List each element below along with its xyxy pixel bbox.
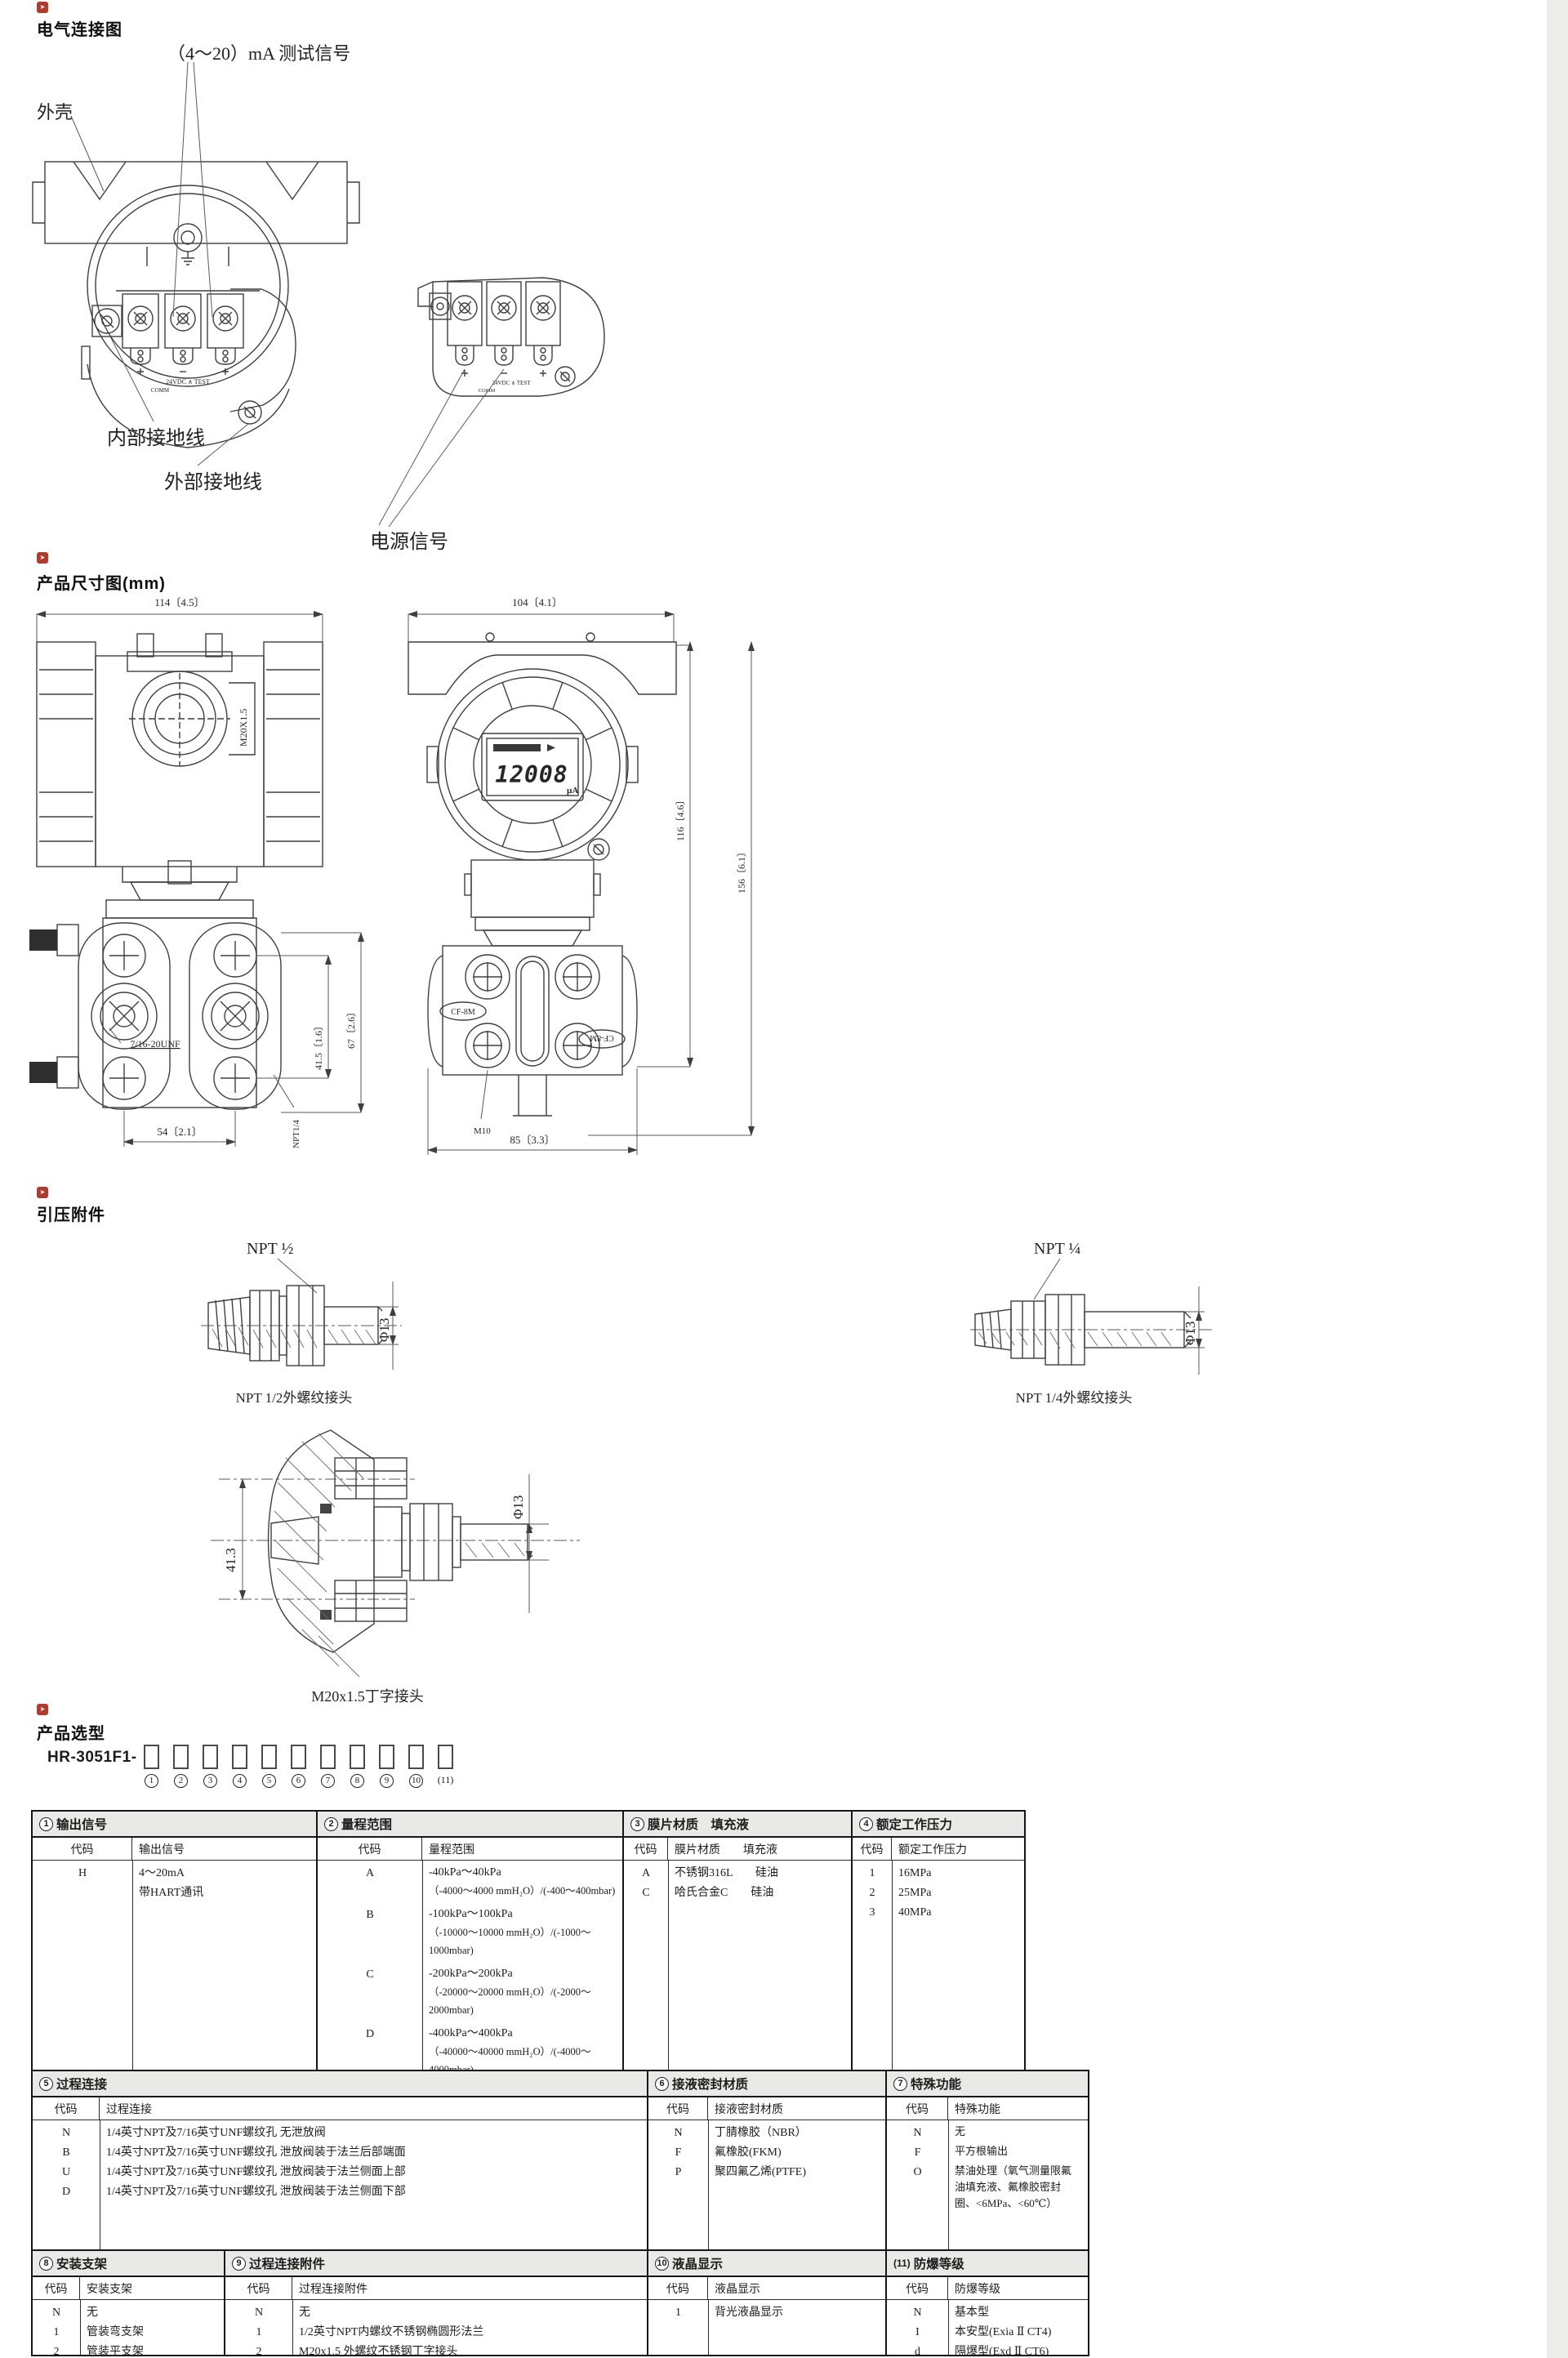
spec-code: F [648, 2143, 708, 2163]
spec-code: I [887, 2323, 948, 2342]
model-position-5: 5 [261, 1745, 278, 1788]
spec-row: d隔爆型(Exd Ⅱ CT6) [887, 2342, 1088, 2355]
dim-width: 114〔4.5〕 [154, 596, 204, 608]
spec-value: 1/4英寸NPT及7/16英寸UNF螺纹孔 无泄放阀 [100, 2124, 647, 2143]
dim-drain-thread: NPT1/4 [292, 1120, 301, 1148]
flange-badge: CF-8M [451, 1008, 475, 1017]
spec-section-title: 额定工作压力 [876, 1815, 952, 1833]
fitting-caption: NPT 1/4外螺纹接头 [1016, 1390, 1133, 1406]
spec-rows: 116MPa225MPa340MPa [853, 1861, 1024, 2070]
spec-section-title: 防爆等级 [914, 2254, 964, 2272]
position-number-11: (11) [438, 1774, 454, 1786]
model-position-4: 4 [232, 1745, 248, 1788]
spec-rows: A不锈钢316L 硅油C哈氏合金C 硅油 [624, 1861, 851, 2070]
npt-quarter-fitting-drawing: NPT ¼ Φ13 NPT 1/4外螺纹接头 [964, 1221, 1233, 1425]
position-number-10: 10 [409, 1774, 423, 1788]
position-number-3: 3 [203, 1774, 217, 1788]
spec-value: 1/4英寸NPT及7/16英寸UNF螺纹孔 泄放阀装于法兰侧面下部 [100, 2182, 647, 2202]
model-code-box [261, 1745, 277, 1769]
dim-bolt-width: 54〔2.1〕 [157, 1126, 202, 1138]
spec-value: 无 [292, 2303, 647, 2323]
model-code-box [438, 1745, 453, 1769]
position-number-6: 6 [655, 2077, 669, 2091]
spec-table-group-2: 5过程连接代码过程连接N1/4英寸NPT及7/16英寸UNF螺纹孔 无泄放阀B1… [31, 2070, 1089, 2251]
value-column-header: 输出信号 [132, 1838, 316, 1860]
spec-value: 1/2英寸NPT内螺纹不锈钢椭圆形法兰 [292, 2323, 647, 2342]
model-position-7: 7 [320, 1745, 336, 1788]
spec-row: 116MPa [853, 1864, 1024, 1883]
spec-row: 340MPa [853, 1903, 1024, 1923]
lcd-unit: µA [567, 786, 578, 796]
spec-row: 2M20x1.5 外螺纹不锈钢丁字接头 [225, 2342, 647, 2355]
spec-subheader: 代码量程范围 [318, 1838, 622, 1861]
spec-code: H [33, 1864, 132, 1903]
spec-row: N无 [33, 2303, 224, 2323]
position-number-4: 4 [859, 1817, 873, 1831]
position-number-9: 9 [380, 1774, 394, 1788]
spec-code: P [648, 2163, 708, 2182]
lcd-value: 12008 [495, 761, 568, 788]
spec-value: 40MPa [892, 1903, 1024, 1923]
page-edge-strip [1547, 0, 1568, 2358]
model-position-10: 10 [408, 1745, 425, 1788]
dim-bolt-span: 41.5〔1.6〕 [313, 1021, 324, 1070]
spec-code: 2 [853, 1883, 892, 1903]
spec-code: U [33, 2163, 100, 2182]
spec-code: 2 [225, 2342, 292, 2355]
spec-subheader: 代码特殊功能 [887, 2097, 1088, 2120]
code-column-header: 代码 [887, 2277, 948, 2299]
spec-row: B-100kPa～100kPa（-10000～10000 mmH₂O）/(-10… [318, 1906, 622, 1959]
spec-row: N丁腈橡胶（NBR） [648, 2124, 885, 2143]
spec-section-header: 1输出信号 [33, 1812, 316, 1838]
model-code-box [379, 1745, 394, 1769]
model-position-6: 6 [291, 1745, 307, 1788]
spec-rows: N1/4英寸NPT及7/16英寸UNF螺纹孔 无泄放阀B1/4英寸NPT及7/1… [33, 2120, 647, 2249]
spec-rows: N无1管装弯支架2管装平支架 [33, 2300, 224, 2355]
spec-section-header: 5过程连接 [33, 2071, 647, 2097]
selection-table: 1输出信号代码输出信号H4～20mA带HART通讯2量程范围代码量程范围A-40… [31, 1810, 1089, 2356]
position-number-3: 3 [630, 1817, 644, 1831]
position-number-10: 10 [655, 2257, 669, 2271]
spec-value: 25MPa [892, 1883, 1024, 1903]
spec-section-title: 膜片材质 填充液 [648, 1815, 749, 1833]
spec-value: 氟橡胶(FKM) [708, 2143, 885, 2163]
model-code-box [350, 1745, 365, 1769]
spec-code: 1 [853, 1864, 892, 1883]
value-column-header: 特殊功能 [948, 2097, 1088, 2120]
spec-rows: N丁腈橡胶（NBR）F氟橡胶(FKM)P聚四氟乙烯(PTFE) [648, 2120, 885, 2249]
spec-section-header: 3膜片材质 填充液 [624, 1812, 851, 1838]
position-number-5: 5 [262, 1774, 276, 1788]
section-title-dimensions: 产品尺寸图(mm) [37, 570, 166, 594]
fitting-caption: NPT 1/2外螺纹接头 [236, 1390, 353, 1406]
spec-code: 2 [33, 2342, 80, 2355]
position-number-9: 9 [232, 2257, 246, 2271]
spec-section-header: (11)防爆等级 [887, 2251, 1088, 2277]
spec-section-header: 4额定工作压力 [853, 1812, 1024, 1838]
code-column-header: 代码 [887, 2097, 948, 2120]
spec-row: 1管装弯支架 [33, 2323, 224, 2342]
spec-rows: A-40kPa～40kPa（-4000～4000 mmH₂O）/(-400～40… [318, 1861, 622, 2070]
dim-diameter: Φ13 [1183, 1322, 1198, 1345]
transmitter-front-view-drawing: 114〔4.5〕 [24, 595, 392, 1162]
terminal-panel-text: 24VDC ∧ TEST [166, 378, 210, 386]
value-column-header: 接液密封材质 [708, 2097, 885, 2120]
spec-code: A [318, 1864, 422, 1900]
spec-row: 11/2英寸NPT内螺纹不锈钢椭圆形法兰 [225, 2323, 647, 2342]
spec-value: -200kPa～200kPa（-20000～20000 mmH₂O）/(-200… [422, 1965, 622, 2019]
spec-row: N无 [887, 2124, 1088, 2143]
datasheet-page: ➤ 电气连接图 ➤ 产品尺寸图(mm) ➤ 引压附件 ➤ 产品选型 （4～20）… [0, 0, 1568, 2358]
spec-code: A [624, 1864, 668, 1883]
spec-value: -100kPa～100kPa（-10000～10000 mmH₂O）/(-100… [422, 1906, 622, 1959]
spec-value: 背光液晶显示 [708, 2303, 885, 2323]
spec-section-6: 6接液密封材质代码接液密封材质N丁腈橡胶（NBR）F氟橡胶(FKM)P聚四氟乙烯… [647, 2071, 885, 2249]
spec-value: 管装平支架 [80, 2342, 224, 2355]
model-position-9: 9 [379, 1745, 395, 1788]
spec-value: 无 [80, 2303, 224, 2323]
spec-section-title: 过程连接 [56, 2075, 107, 2093]
dim-height: 116〔4.6〕 [675, 795, 686, 841]
spec-code: C [624, 1883, 668, 1903]
model-prefix: HR-3051F1- [47, 1745, 137, 1771]
spec-section-title: 接液密封材质 [672, 2075, 748, 2093]
spec-rows: 1背光液晶显示 [648, 2300, 885, 2355]
electrical-connection-drawing: 24VDC ∧ TEST COMM [24, 47, 376, 505]
spec-subheader: 代码防爆等级 [887, 2277, 1088, 2300]
spec-section-title: 过程连接附件 [249, 2254, 325, 2272]
transmitter-side-view-drawing: 104〔4.1〕 [392, 595, 772, 1162]
position-number-11: (11) [893, 2258, 911, 2269]
spec-code: O [887, 2163, 948, 2212]
spec-value: 隔爆型(Exd Ⅱ CT6) [948, 2342, 1088, 2355]
spec-row: C-200kPa～200kPa（-20000～20000 mmH₂O）/(-20… [318, 1965, 622, 2019]
position-number-1: 1 [145, 1774, 158, 1788]
spec-value: 管装弯支架 [80, 2323, 224, 2342]
spec-value: 聚四氟乙烯(PTFE) [708, 2163, 885, 2182]
fitting-caption: M20x1.5丁字接头 [311, 1688, 424, 1705]
model-code-box [232, 1745, 247, 1769]
model-code-box [203, 1745, 218, 1769]
spec-section-9: 9过程连接附件代码过程连接附件N无11/2英寸NPT内螺纹不锈钢椭圆形法兰2M2… [224, 2251, 647, 2355]
spec-code: N [225, 2303, 292, 2323]
code-column-header: 代码 [318, 1838, 422, 1860]
dim-diameter: Φ13 [376, 1318, 392, 1342]
spec-subheader: 代码过程连接 [33, 2097, 647, 2120]
terminal-panel-text2: COMM [479, 388, 496, 394]
spec-section-title: 特殊功能 [911, 2075, 961, 2093]
dim-flange-width: 85〔3.3〕 [510, 1134, 555, 1146]
dim-flange-thread: 7/16-20UNF [130, 1038, 180, 1050]
model-position-11: (11) [438, 1745, 454, 1788]
spec-code: 3 [853, 1903, 892, 1923]
spec-row: C哈氏合金C 硅油 [624, 1883, 851, 1903]
spec-subheader: 代码液晶显示 [648, 2277, 885, 2300]
dim-width: 104〔4.1〕 [512, 596, 563, 608]
spec-section-10: 10液晶显示代码液晶显示1背光液晶显示 [647, 2251, 885, 2355]
spec-section-header: 7特殊功能 [887, 2071, 1088, 2097]
spec-section-5: 5过程连接代码过程连接N1/4英寸NPT及7/16英寸UNF螺纹孔 无泄放阀B1… [33, 2071, 647, 2249]
position-number-4: 4 [233, 1774, 247, 1788]
spec-value: M20x1.5 外螺纹不锈钢丁字接头 [292, 2342, 647, 2355]
spec-code: N [648, 2124, 708, 2143]
spec-code: 1 [225, 2323, 292, 2342]
spec-section-header: 6接液密封材质 [648, 2071, 885, 2097]
spec-code: N [33, 2303, 80, 2323]
spec-code: B [318, 1906, 422, 1959]
position-number-7: 7 [321, 1774, 335, 1788]
spec-row: 2管装平支架 [33, 2342, 224, 2355]
spec-value: 禁油处理（氧气测量限氟油填充液、氟橡胶密封圈、<6MPa、<60℃） [948, 2163, 1088, 2212]
position-number-5: 5 [39, 2077, 53, 2091]
position-number-7: 7 [893, 2077, 907, 2091]
section-title-fittings: 引压附件 [37, 1201, 105, 1225]
code-column-header: 代码 [225, 2277, 292, 2299]
model-code-box [408, 1745, 424, 1769]
spec-value: 哈氏合金C 硅油 [668, 1883, 851, 1903]
spec-row: U1/4英寸NPT及7/16英寸UNF螺纹孔 泄放阀装于法兰侧面上部 [33, 2163, 647, 2182]
code-column-header: 代码 [624, 1838, 668, 1860]
spec-subheader: 代码额定工作压力 [853, 1838, 1024, 1861]
thread-label: NPT ¼ [1034, 1240, 1080, 1258]
spec-row: A不锈钢316L 硅油 [624, 1864, 851, 1883]
spec-section-title: 安装支架 [56, 2254, 107, 2272]
value-column-header: 额定工作压力 [892, 1838, 1024, 1860]
spec-code: N [33, 2124, 100, 2143]
spec-row: N基本型 [887, 2303, 1088, 2323]
m20-tee-fitting-drawing: 41.3 Φ13 M20x1.5丁字接头 [196, 1425, 588, 1715]
terminal-panel-text2: COMM [151, 387, 170, 394]
code-column-header: 代码 [33, 2277, 80, 2299]
code-column-header: 代码 [33, 1838, 132, 1860]
spec-row: N无 [225, 2303, 647, 2323]
spec-code: D [318, 2025, 422, 2070]
spec-code: B [33, 2143, 100, 2163]
position-number-6: 6 [292, 1774, 305, 1788]
npt-half-fitting-drawing: NPT ½ Φ13 NPT 1/2外螺纹接头 [196, 1221, 441, 1425]
spec-section-header: 2量程范围 [318, 1812, 622, 1838]
position-number-2: 2 [324, 1817, 338, 1831]
spec-rows: N基本型I本安型(Exia Ⅱ CT4)d隔爆型(Exd Ⅱ CT6) [887, 2300, 1088, 2355]
spec-row: O禁油处理（氧气测量限氟油填充液、氟橡胶密封圈、<6MPa、<60℃） [887, 2163, 1088, 2212]
spec-value: 1/4英寸NPT及7/16英寸UNF螺纹孔 泄放阀装于法兰侧面上部 [100, 2163, 647, 2182]
spec-subheader: 代码安装支架 [33, 2277, 224, 2300]
model-position-8: 8 [350, 1745, 366, 1788]
spec-code: d [887, 2342, 948, 2355]
spec-value: 平方根输出 [948, 2143, 1088, 2163]
terminal-panel-text: 24VDC ∧ TEST [492, 380, 532, 386]
spec-row: 1背光液晶显示 [648, 2303, 885, 2323]
spec-section-title: 输出信号 [56, 1815, 107, 1833]
terminal-module-drawing: 24VDC ∧ TEST COMM [351, 257, 621, 564]
model-position-3: 3 [203, 1745, 219, 1788]
section-marker-icon: ➤ [37, 552, 48, 564]
dim-bolt-thread: M10 [474, 1126, 491, 1136]
spec-value: -40kPa～40kPa（-4000～4000 mmH₂O）/(-400～400… [422, 1864, 622, 1900]
spec-section-8: 8安装支架代码安装支架N无1管装弯支架2管装平支架 [33, 2251, 224, 2355]
value-column-header: 过程连接 [100, 2097, 647, 2120]
spec-row: D1/4英寸NPT及7/16英寸UNF螺纹孔 泄放阀装于法兰侧面下部 [33, 2182, 647, 2202]
spec-row: I本安型(Exia Ⅱ CT4) [887, 2323, 1088, 2342]
spec-row: F氟橡胶(FKM) [648, 2143, 885, 2163]
spec-row: H4～20mA带HART通讯 [33, 1864, 316, 1903]
model-code-box [144, 1745, 159, 1769]
spec-section-3: 3膜片材质 填充液代码膜片材质 填充液A不锈钢316L 硅油C哈氏合金C 硅油 [622, 1812, 851, 2070]
spec-row: N1/4英寸NPT及7/16英寸UNF螺纹孔 无泄放阀 [33, 2124, 647, 2143]
spec-code: F [887, 2143, 948, 2163]
spec-section-title: 量程范围 [341, 1815, 392, 1833]
code-column-header: 代码 [33, 2097, 100, 2120]
model-boxes: 12345678910(11) [144, 1745, 467, 1788]
spec-subheader: 代码输出信号 [33, 1838, 316, 1861]
spec-section-7: 7特殊功能代码特殊功能N无F平方根输出O禁油处理（氧气测量限氟油填充液、氟橡胶密… [885, 2071, 1088, 2249]
spec-value: 4～20mA带HART通讯 [132, 1864, 316, 1903]
spec-row: P聚四氟乙烯(PTFE) [648, 2163, 885, 2182]
value-column-header: 安装支架 [80, 2277, 224, 2299]
model-position-2: 2 [173, 1745, 189, 1788]
spec-section-1: 1输出信号代码输出信号H4～20mA带HART通讯 [33, 1812, 316, 2070]
dim-flange-height: 67〔2.6〕 [345, 1007, 357, 1049]
value-column-header: 过程连接附件 [292, 2277, 647, 2299]
spec-table-group-1: 1输出信号代码输出信号H4～20mA带HART通讯2量程范围代码量程范围A-40… [31, 1810, 1026, 2071]
model-position-1: 1 [144, 1745, 160, 1788]
model-code-box [291, 1745, 306, 1769]
spec-row: 225MPa [853, 1883, 1024, 1903]
thread-label: NPT ½ [247, 1240, 293, 1258]
spec-code: D [33, 2182, 100, 2202]
spec-section-title: 液晶显示 [672, 2254, 723, 2272]
value-column-header: 液晶显示 [708, 2277, 885, 2299]
position-number-8: 8 [39, 2257, 53, 2271]
dim-total-height: 156〔6.1〕 [736, 847, 747, 894]
spec-value: 本安型(Exia Ⅱ CT4) [948, 2323, 1088, 2342]
spec-section-header: 9过程连接附件 [225, 2251, 647, 2277]
spec-code: C [318, 1965, 422, 2019]
dim-length: 41.3 [223, 1548, 238, 1572]
spec-value: 不锈钢316L 硅油 [668, 1864, 851, 1883]
spec-value: 无 [948, 2124, 1088, 2143]
code-column-header: 代码 [648, 2097, 708, 2120]
model-code-box [173, 1745, 189, 1769]
spec-rows: N无F平方根输出O禁油处理（氧气测量限氟油填充液、氟橡胶密封圈、<6MPa、<6… [887, 2120, 1088, 2249]
spec-code: 1 [33, 2323, 80, 2342]
position-number-2: 2 [174, 1774, 188, 1788]
spec-row: A-40kPa～40kPa（-4000～4000 mmH₂O）/(-400～40… [318, 1864, 622, 1900]
spec-section-header: 8安装支架 [33, 2251, 224, 2277]
spec-value: -400kPa～400kPa（-40000～40000 mmH₂O）/(-400… [422, 2025, 622, 2070]
spec-section-2: 2量程范围代码量程范围A-40kPa～40kPa（-4000～4000 mmH₂… [316, 1812, 622, 2070]
spec-row: D-400kPa～400kPa（-40000～40000 mmH₂O）/(-40… [318, 2025, 622, 2070]
spec-section-4: 4额定工作压力代码额定工作压力116MPa225MPa340MPa [851, 1812, 1024, 2070]
dim-conduit-thread: M20X1.5 [238, 709, 249, 747]
spec-value: 16MPa [892, 1864, 1024, 1883]
spec-value: 基本型 [948, 2303, 1088, 2323]
value-column-header: 量程范围 [422, 1838, 622, 1860]
model-code-box [320, 1745, 336, 1769]
value-column-header: 防爆等级 [948, 2277, 1088, 2299]
code-column-header: 代码 [648, 2277, 708, 2299]
section-title-selection: 产品选型 [37, 1720, 105, 1744]
section-marker-icon: ➤ [37, 1704, 48, 1715]
spec-section-header: 10液晶显示 [648, 2251, 885, 2277]
section-title-electrical: 电气连接图 [37, 16, 122, 40]
spec-value: 丁腈橡胶（NBR） [708, 2124, 885, 2143]
section-marker-icon: ➤ [37, 1187, 48, 1198]
code-column-header: 代码 [853, 1838, 892, 1860]
spec-row: F平方根输出 [887, 2143, 1088, 2163]
spec-subheader: 代码过程连接附件 [225, 2277, 647, 2300]
spec-table-group-3: 8安装支架代码安装支架N无1管装弯支架2管装平支架9过程连接附件代码过程连接附件… [31, 2249, 1089, 2356]
model-code-line: HR-3051F1- 12345678910(11) [47, 1745, 467, 1788]
position-number-1: 1 [39, 1817, 53, 1831]
spec-code: N [887, 2124, 948, 2143]
spec-value: 1/4英寸NPT及7/16英寸UNF螺纹孔 泄放阀装于法兰后部端面 [100, 2143, 647, 2163]
spec-code: 1 [648, 2303, 708, 2323]
section-marker-icon: ➤ [37, 2, 48, 13]
spec-code: N [887, 2303, 948, 2323]
position-number-8: 8 [350, 1774, 364, 1788]
spec-subheader: 代码膜片材质 填充液 [624, 1838, 851, 1861]
dim-diameter: Φ13 [510, 1495, 526, 1519]
spec-section-11: (11)防爆等级代码防爆等级N基本型I本安型(Exia Ⅱ CT4)d隔爆型(E… [885, 2251, 1088, 2355]
spec-rows: H4～20mA带HART通讯 [33, 1861, 316, 2070]
spec-row: B1/4英寸NPT及7/16英寸UNF螺纹孔 泄放阀装于法兰后部端面 [33, 2143, 647, 2163]
value-column-header: 膜片材质 填充液 [668, 1838, 851, 1860]
flange-badge: CF-8M [590, 1033, 614, 1042]
spec-subheader: 代码接液密封材质 [648, 2097, 885, 2120]
spec-rows: N无11/2英寸NPT内螺纹不锈钢椭圆形法兰2M20x1.5 外螺纹不锈钢丁字接… [225, 2300, 647, 2355]
